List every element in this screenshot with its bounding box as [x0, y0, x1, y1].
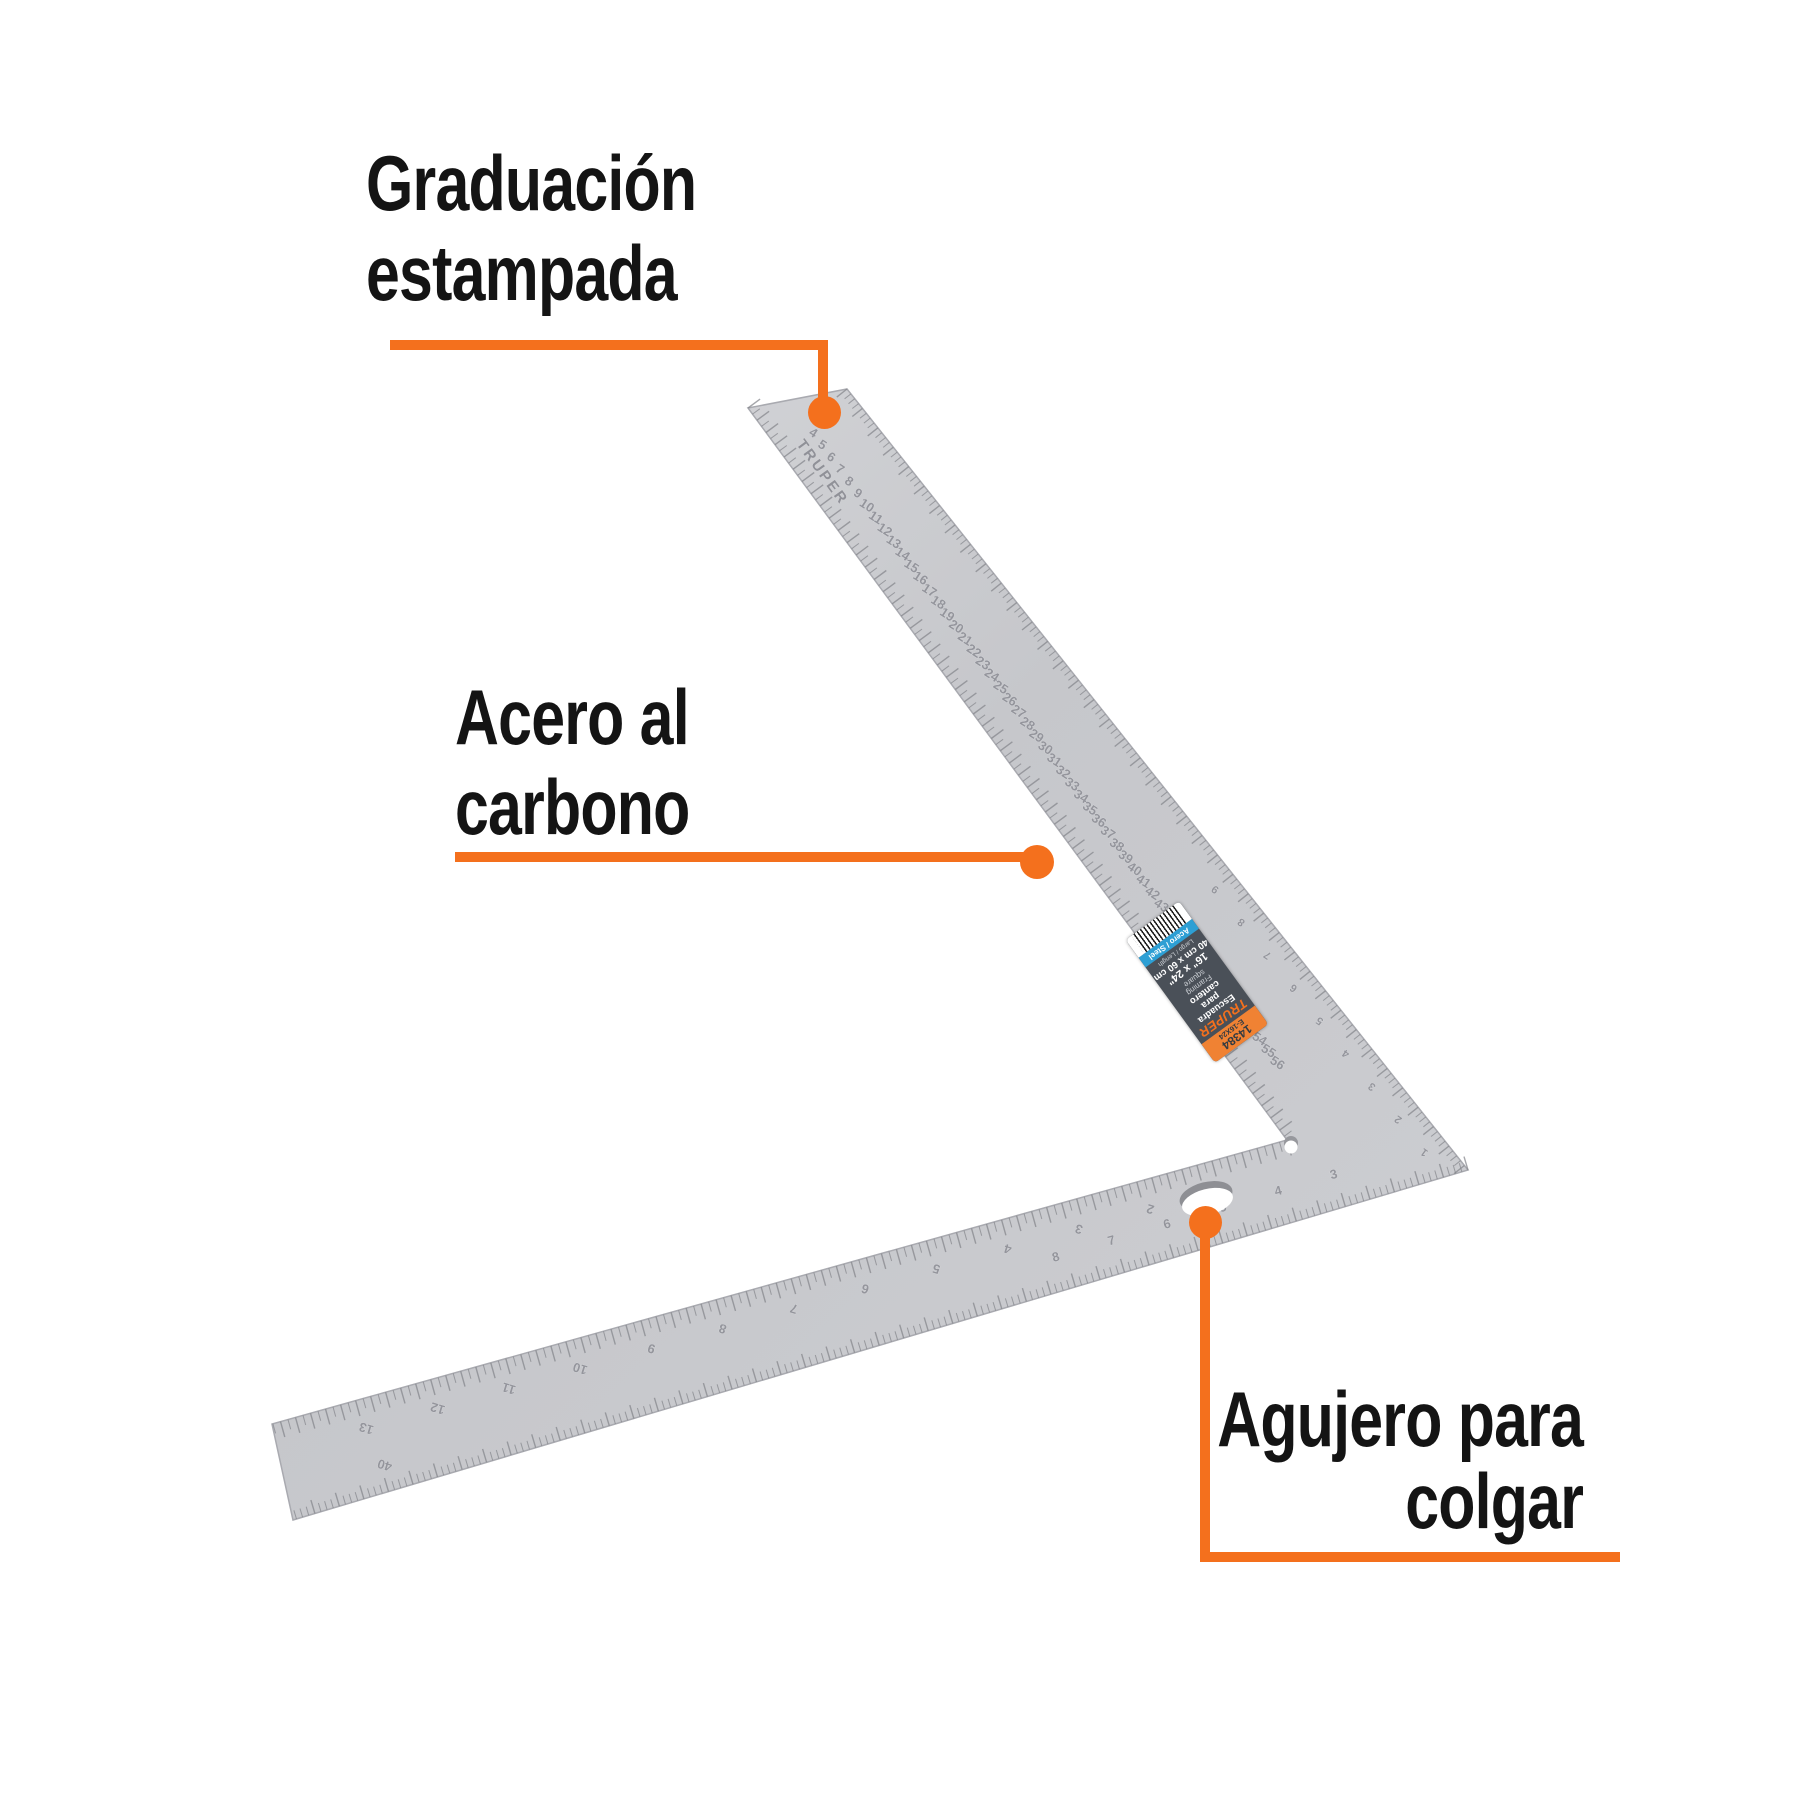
- leader-line-agujero-horizontal: [1200, 1552, 1620, 1562]
- leader-line-agujero-vertical: [1200, 1228, 1210, 1562]
- product-diagram: 4567891011121314151617181920212223242526…: [0, 0, 1800, 1800]
- square-body: [272, 389, 1468, 1520]
- leader-line-graduacion-horizontal: [390, 340, 828, 350]
- callout-label-acero: Acero al carbono: [455, 672, 690, 852]
- callout-dot-acero: [1020, 845, 1054, 879]
- callout-label-graduacion: Graduación estampada: [366, 138, 696, 318]
- leader-line-acero: [455, 852, 1045, 862]
- corner-hole: [1284, 1136, 1298, 1154]
- callout-dot-graduacion: [808, 396, 841, 429]
- callout-dot-agujero: [1189, 1206, 1222, 1239]
- callout-label-agujero: Agujero para colgar: [1217, 1378, 1583, 1542]
